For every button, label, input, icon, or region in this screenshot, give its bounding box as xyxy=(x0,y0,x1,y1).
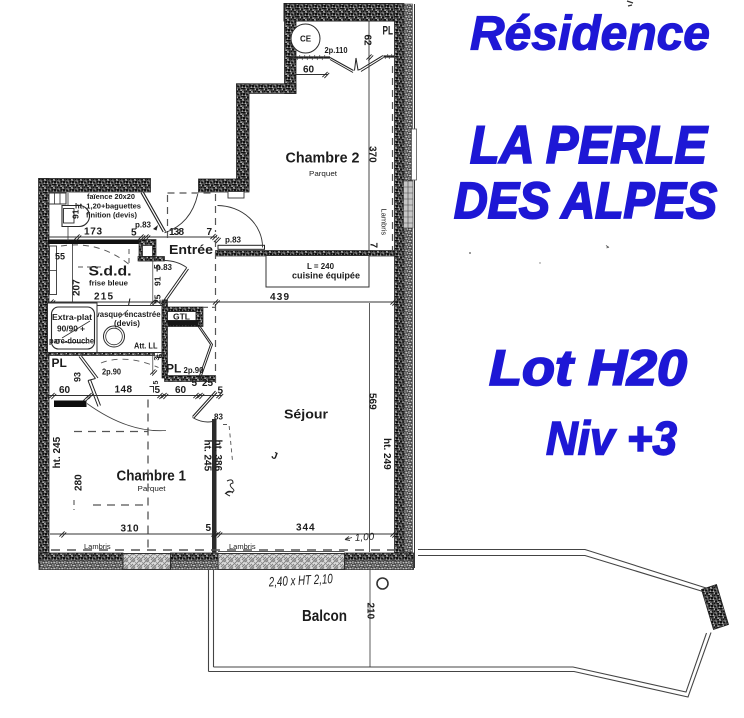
svg-text:ht. 386: ht. 386 xyxy=(212,440,223,472)
svg-text:Lambris: Lambris xyxy=(229,542,256,551)
svg-text:173: 173 xyxy=(84,227,102,238)
svg-text:25: 25 xyxy=(202,378,214,389)
svg-text:frise bleue: frise bleue xyxy=(89,279,128,288)
svg-text:370: 370 xyxy=(367,146,378,163)
svg-text:7: 7 xyxy=(207,227,213,238)
svg-text:138: 138 xyxy=(169,227,184,238)
svg-text:5: 5 xyxy=(155,385,161,396)
svg-text:569: 569 xyxy=(367,393,378,410)
svg-text:5: 5 xyxy=(192,378,198,389)
svg-text:439: 439 xyxy=(270,292,289,303)
svg-text:1,00: 1,00 xyxy=(354,532,375,544)
svg-text:DES ALPES: DES ALPES xyxy=(454,172,717,229)
svg-text:5: 5 xyxy=(152,264,162,269)
svg-text:PL: PL xyxy=(166,362,181,376)
svg-text:CE: CE xyxy=(300,35,312,44)
svg-text:210: 210 xyxy=(365,603,376,620)
svg-text:93: 93 xyxy=(73,372,83,382)
svg-text:ht. 1,20+baguettes: ht. 1,20+baguettes xyxy=(75,202,141,211)
svg-text:Chambre 2: Chambre 2 xyxy=(286,151,360,167)
svg-text:Résidence: Résidence xyxy=(470,8,710,61)
svg-text:91: 91 xyxy=(71,209,81,219)
svg-text:25: 25 xyxy=(153,294,163,304)
svg-text:310: 310 xyxy=(121,524,139,535)
svg-text:60: 60 xyxy=(59,385,71,396)
svg-text:280: 280 xyxy=(74,474,85,491)
svg-text:ht. 249: ht. 249 xyxy=(381,438,392,470)
svg-text:7: 7 xyxy=(368,243,379,249)
svg-text:Lambris: Lambris xyxy=(84,542,111,551)
svg-text:3: 3 xyxy=(154,357,161,361)
svg-text:Parquet: Parquet xyxy=(138,484,167,493)
svg-text:PL: PL xyxy=(383,26,394,38)
svg-text:Séjour: Séjour xyxy=(284,407,328,422)
svg-text:vasque encastrée: vasque encastrée xyxy=(96,310,162,319)
svg-text:Niv +3: Niv +3 xyxy=(546,412,677,465)
svg-text:2p.110: 2p.110 xyxy=(325,46,349,55)
svg-text:LA PERLE: LA PERLE xyxy=(470,116,709,175)
svg-text:60: 60 xyxy=(303,65,315,76)
svg-text:207: 207 xyxy=(72,279,83,296)
svg-text:83: 83 xyxy=(214,413,223,422)
svg-text:p.83: p.83 xyxy=(225,236,242,245)
svg-text:Parquet: Parquet xyxy=(309,169,338,178)
svg-text:Entrée: Entrée xyxy=(169,242,213,257)
svg-text:ht. 245: ht. 245 xyxy=(52,436,63,468)
svg-text:Extra-plat: Extra-plat xyxy=(52,313,92,322)
svg-text:91: 91 xyxy=(153,276,163,286)
svg-text:pare-douche: pare-douche xyxy=(49,337,95,346)
svg-text:344: 344 xyxy=(296,523,315,534)
svg-text:Lambris: Lambris xyxy=(380,209,389,236)
svg-text:Att. LL: Att. LL xyxy=(134,342,158,351)
svg-text:2p.90: 2p.90 xyxy=(184,366,205,375)
svg-text:faïence 20x20: faïence 20x20 xyxy=(87,192,135,201)
svg-text:148: 148 xyxy=(115,385,133,396)
svg-text:GTL: GTL xyxy=(173,312,190,322)
svg-text:60: 60 xyxy=(175,385,187,396)
svg-text:62: 62 xyxy=(362,35,373,47)
svg-text:cuisine équipée: cuisine équipée xyxy=(292,271,360,282)
svg-text:finition (devis): finition (devis) xyxy=(86,211,137,220)
svg-text:Lot H20: Lot H20 xyxy=(489,340,687,396)
svg-text:Chambre 1: Chambre 1 xyxy=(117,469,187,485)
svg-text:55: 55 xyxy=(55,252,65,262)
svg-text:215: 215 xyxy=(94,292,113,303)
svg-text:S.d.d.: S.d.d. xyxy=(89,264,132,279)
svg-text:ht. 245: ht. 245 xyxy=(202,440,213,472)
svg-text:5: 5 xyxy=(206,523,212,534)
svg-text:Balcon: Balcon xyxy=(302,608,347,625)
svg-text:5: 5 xyxy=(218,386,224,397)
svg-text:5: 5 xyxy=(153,381,160,385)
svg-text:(devis): (devis) xyxy=(114,319,140,328)
svg-text:2p.90: 2p.90 xyxy=(102,368,122,377)
svg-text:PL: PL xyxy=(52,356,67,370)
svg-text:p.83: p.83 xyxy=(135,221,152,230)
svg-text:90/90 +: 90/90 + xyxy=(57,325,85,334)
